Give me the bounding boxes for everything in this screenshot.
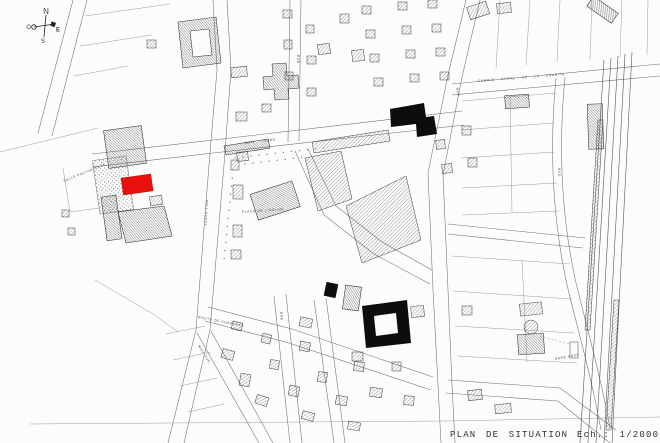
- label-mail-sud: MAIL SUD: [197, 344, 211, 364]
- hatched-buildings: [62, 0, 618, 431]
- label-chemin-rural: CHEMIN RURAL DE LA CHARITE: [478, 72, 565, 83]
- black-building-small: [324, 282, 339, 298]
- label-gare-sncf: GARE SNCF: [554, 353, 579, 361]
- parcel-lines: [0, 0, 660, 424]
- compass-s: S: [41, 38, 46, 45]
- building: [178, 17, 221, 68]
- church-building: [263, 63, 299, 100]
- site-plan-page: SALLE POLYVALENTE MAIL NORD MAIL OUEST M…: [0, 0, 660, 443]
- caption: PLAN DE SITUATION Ech.: 1/2000: [450, 430, 659, 440]
- label-mail-ouest: MAIL OUEST: [203, 200, 209, 226]
- compass-n: N: [43, 7, 49, 16]
- compass-east-marker: [50, 21, 56, 27]
- label-rue-east: RUE: [455, 87, 461, 96]
- label-rue-north: RUE: [296, 55, 300, 64]
- building: [118, 206, 172, 243]
- railway-platform: [585, 120, 603, 330]
- site-plan-map: SALLE POLYVALENTE MAIL NORD MAIL OUEST M…: [0, 0, 660, 443]
- caption-title: PLAN DE SITUATION: [450, 430, 568, 440]
- caption-scale: Ech.: 1/2000: [577, 430, 659, 440]
- church-building: [250, 181, 300, 220]
- compass-o: O: [26, 25, 31, 31]
- label-rue-south: RUE: [279, 312, 284, 321]
- black-building-south-courtyard: [362, 300, 411, 348]
- black-building-north: [390, 103, 437, 137]
- label-rue-gare: RUE: [557, 168, 562, 177]
- compass-e: E: [56, 28, 60, 34]
- compass-rose: N S O E: [26, 7, 60, 45]
